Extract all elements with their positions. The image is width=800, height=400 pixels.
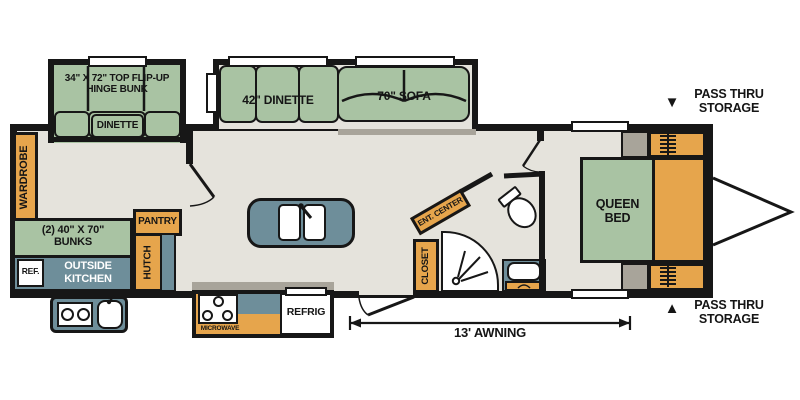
window [571,289,629,299]
bunk-dinette-label: DINETTE [91,114,144,137]
bunk-slide-label-line2: HINGE BUNK [52,84,182,95]
queen-bed-line2: BED [580,212,655,226]
outside-kitchen-line1: OUTSIDE [45,260,131,273]
window [88,56,147,67]
nightstand [621,263,649,291]
counter [160,233,176,292]
entry-door-swing-icon [359,298,368,315]
entry-door-icon [368,297,414,315]
pass-thru-bottom-line2: STORAGE [684,313,774,327]
floor-plan: 34" X 72" TOP FLIP-UP HINGE BUNK DINETTE… [0,0,800,400]
kitchen-island [247,198,355,248]
queen-bed-line1: QUEEN [580,198,655,212]
entry-door-opening [359,290,413,297]
pass-thru-storage-top [648,131,706,158]
window [228,56,328,67]
bunkroom-wall-stub [186,126,193,164]
outside-sink [97,300,123,329]
pass-thru-bottom-label: PASS THRU STORAGE [684,299,774,327]
microwave-label: MICROWAVE [194,325,246,332]
burner-icon [222,310,233,321]
bed-headboard [652,157,706,263]
pass-thru-bottom-line1: PASS THRU [684,299,774,313]
burner-icon [61,308,74,321]
bunk-dinette-cushion [144,111,181,138]
bath-bedroom-wall [539,171,545,291]
burner-icon [77,308,90,321]
bunks-label-line1: (2) 40" X 70" [14,224,132,236]
closet-label: CLOSET [414,240,438,292]
outside-kitchen-label: OUTSIDE KITCHEN [45,260,131,285]
bath-sink [507,262,541,281]
nightstand [621,131,649,158]
dinette-label: 42" DINETTE [218,94,338,107]
awning-label: 13' AWNING [425,326,555,340]
bunk-slide-label-line1: 34" X 72" TOP FLIP-UP [52,73,182,84]
arrow-left-icon [350,319,361,328]
pass-thru-top-line1: PASS THRU [684,88,774,102]
window [285,287,327,296]
bath-wall-stub [537,126,544,141]
pass-thru-arrow-down-icon: ▼ [659,95,685,112]
burner-icon [202,310,213,321]
window [206,73,218,113]
window [355,56,455,67]
bunks-label-line2: BUNKS [14,236,132,248]
window [571,121,629,132]
kitchen-counter [236,294,280,314]
refrig-label: REFRIG [280,307,332,319]
ref-label: REF. [17,259,44,287]
outside-kitchen-line2: KITCHEN [45,273,131,286]
burner-icon [213,296,224,307]
bunk-dinette-cushion [54,111,90,138]
hutch-label: HUTCH [136,235,161,291]
bunk-slide-label: 34" X 72" TOP FLIP-UP HINGE BUNK [52,73,182,95]
pass-thru-top-label: PASS THRU STORAGE [684,88,774,116]
island-sink [303,204,326,241]
island-sink [278,204,301,241]
pass-thru-top-line2: STORAGE [684,102,774,116]
sofa-label: 70" SOFA [344,90,464,103]
bunks-label: (2) 40" X 70" BUNKS [14,224,132,248]
pass-thru-storage-bottom [648,263,706,291]
vanity-drawer [505,281,543,291]
trailer-tongue-icon [713,178,791,245]
pantry-label: PANTRY [133,209,182,236]
arrow-right-icon [619,319,630,328]
wardrobe-label: WARDROBE [12,132,37,223]
pass-thru-arrow-up-icon: ▲ [659,301,685,318]
queen-bed-label: QUEEN BED [580,198,655,226]
